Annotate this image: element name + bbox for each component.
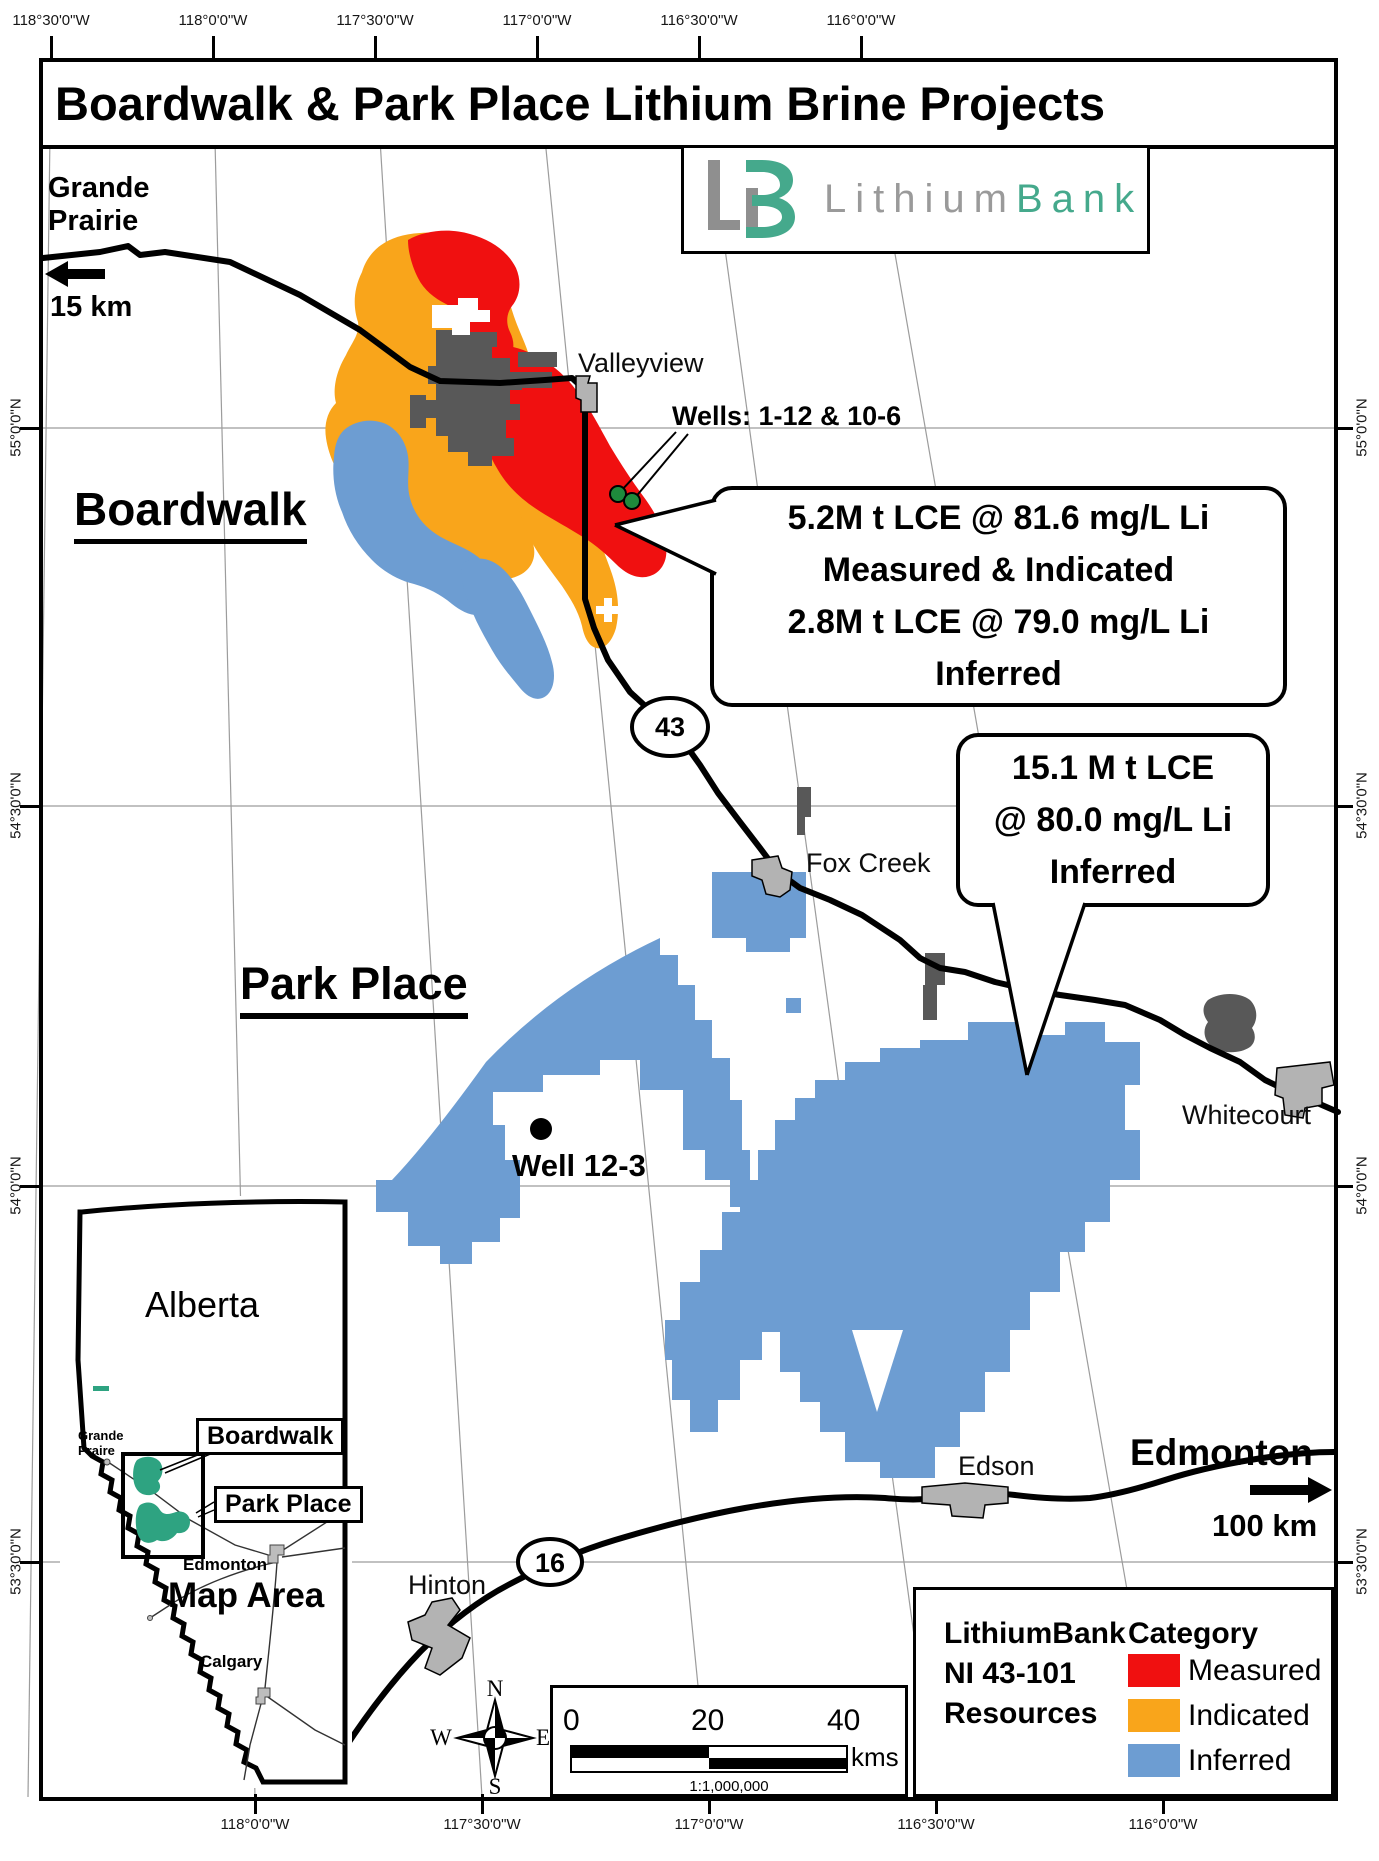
compass-n: N bbox=[481, 1676, 509, 1702]
coord-top-5: 116°0'0"W bbox=[801, 12, 921, 29]
legend: LithiumBank NI 43-101 Resources Category… bbox=[913, 1587, 1334, 1797]
coord-right-0: 55°0'0"N bbox=[1354, 368, 1371, 488]
park-place-callout-line3: Inferred bbox=[958, 846, 1268, 898]
scale-seg bbox=[572, 1758, 709, 1769]
tick bbox=[212, 36, 215, 58]
scale-ratio: 1:1,000,000 bbox=[553, 1778, 905, 1795]
highway-16-number: 16 bbox=[528, 1548, 572, 1579]
scale-20: 20 bbox=[691, 1704, 724, 1738]
legend-swatch-indicated bbox=[1128, 1699, 1180, 1732]
legend-swatch-inferred bbox=[1128, 1744, 1180, 1777]
tick bbox=[20, 427, 39, 430]
well-12-3-dot bbox=[530, 1118, 552, 1140]
tick bbox=[20, 1185, 39, 1188]
lithiumbank-logo-mark bbox=[706, 158, 798, 242]
page-title: Boardwalk & Park Place Lithium Brine Pro… bbox=[43, 76, 1105, 131]
well-10-6-dot bbox=[624, 493, 640, 509]
grande-prairie-label-line1: Grande bbox=[48, 172, 150, 205]
scale-unit: kms bbox=[851, 1742, 899, 1773]
inset-edmonton-label: Edmonton bbox=[183, 1555, 267, 1575]
map-page: Boardwalk & Park Place Lithium Brine Pro… bbox=[0, 0, 1379, 1861]
scale-seg bbox=[709, 1758, 846, 1769]
boardwalk-project-area bbox=[325, 231, 666, 699]
tick bbox=[20, 1561, 39, 1564]
tick bbox=[935, 1794, 938, 1814]
coord-top-1: 118°0'0"W bbox=[153, 12, 273, 29]
scale-bar-graphic bbox=[570, 1745, 848, 1773]
fox-creek-label: Fox Creek bbox=[806, 848, 931, 879]
inset-alberta-label: Alberta bbox=[145, 1284, 259, 1326]
legend-title-line2: NI 43-101 bbox=[944, 1654, 1076, 1694]
coord-bottom-3: 116°30'0"W bbox=[876, 1816, 996, 1833]
boardwalk-callout-line3: 2.8M t LCE @ 79.0 mg/L Li bbox=[712, 596, 1285, 648]
inset-grande-prairie-label: Grande Praire bbox=[78, 1428, 124, 1458]
coord-right-2: 54°0'0"N bbox=[1354, 1126, 1371, 1246]
tick bbox=[50, 36, 53, 58]
lithiumbank-wordmark: LithiumBank bbox=[824, 177, 1143, 222]
highway-43-number: 43 bbox=[648, 712, 692, 743]
boardwalk-callout-line1: 5.2M t LCE @ 81.6 mg/L Li bbox=[712, 492, 1285, 544]
tick bbox=[860, 36, 863, 58]
boardwalk-callout-line2: Measured & Indicated bbox=[712, 544, 1285, 596]
tick bbox=[1334, 805, 1353, 808]
tick bbox=[1334, 1185, 1353, 1188]
coord-bottom-4: 116°0'0"W bbox=[1103, 1816, 1223, 1833]
tick bbox=[1162, 1794, 1165, 1814]
grande-prairie-arrow bbox=[45, 261, 105, 287]
coord-right-1: 54°30'0"N bbox=[1354, 746, 1371, 866]
boardwalk-label: Boardwalk bbox=[74, 482, 307, 544]
coord-bottom-0: 118°0'0"W bbox=[195, 1816, 315, 1833]
inset-gp-line1: Grande bbox=[78, 1428, 124, 1443]
legend-label-indicated: Indicated bbox=[1188, 1699, 1310, 1733]
wells-label: Wells: 1-12 & 10-6 bbox=[672, 401, 901, 432]
logo-word-bank: Bank bbox=[1016, 177, 1143, 221]
scale-seg bbox=[709, 1747, 846, 1758]
tick bbox=[708, 1794, 711, 1814]
coord-top-2: 117°30'0"W bbox=[315, 12, 435, 29]
coord-bottom-2: 117°0'0"W bbox=[649, 1816, 769, 1833]
legend-title-line3: Resources bbox=[944, 1694, 1097, 1734]
compass-rose bbox=[457, 1700, 533, 1776]
title-bar: Boardwalk & Park Place Lithium Brine Pro… bbox=[39, 58, 1338, 149]
tick bbox=[536, 36, 539, 58]
legend-swatch-measured bbox=[1128, 1654, 1180, 1687]
inset-boardwalk-shape bbox=[133, 1457, 162, 1495]
whitecourt-label: Whitecourt bbox=[1182, 1100, 1311, 1131]
tick bbox=[1334, 1561, 1353, 1564]
scale-seg bbox=[572, 1747, 709, 1758]
lithiumbank-logo: LithiumBank bbox=[681, 145, 1150, 254]
tick bbox=[374, 36, 377, 58]
compass-w: W bbox=[427, 1725, 455, 1751]
park-place-resource-callout: 15.1 M t LCE @ 80.0 mg/L Li Inferred bbox=[958, 742, 1268, 898]
inset-gp-line2: Praire bbox=[78, 1443, 124, 1458]
inset-green-dash bbox=[93, 1386, 109, 1391]
tick bbox=[20, 805, 39, 808]
edmonton-arrow bbox=[1250, 1477, 1332, 1503]
inset-map-area-label: Map Area bbox=[168, 1576, 324, 1616]
scale-40: 40 bbox=[827, 1704, 860, 1738]
legend-label-inferred: Inferred bbox=[1188, 1744, 1291, 1778]
coord-bottom-1: 117°30'0"W bbox=[422, 1816, 542, 1833]
edmonton-label: Edmonton bbox=[1130, 1432, 1313, 1474]
coord-right-3: 53°30'0"N bbox=[1354, 1502, 1371, 1622]
boardwalk-callout-line4: Inferred bbox=[712, 648, 1285, 700]
tick bbox=[698, 36, 701, 58]
coord-top-0: 118°30'0"W bbox=[0, 12, 111, 29]
scale-bar: 0 20 40 kms 1:1,000,000 bbox=[550, 1685, 908, 1797]
coord-top-3: 117°0'0"W bbox=[477, 12, 597, 29]
compass-s: S bbox=[481, 1774, 509, 1800]
hinton-town bbox=[408, 1598, 470, 1675]
grande-prairie-label-line2: Prairie bbox=[48, 205, 138, 238]
coord-top-4: 116°30'0"W bbox=[639, 12, 759, 29]
tick bbox=[1334, 427, 1353, 430]
park-place-callout-line2: @ 80.0 mg/L Li bbox=[958, 794, 1268, 846]
legend-label-measured: Measured bbox=[1188, 1654, 1321, 1688]
edson-town bbox=[922, 1483, 1008, 1518]
logo-word-lithium: Lithium bbox=[824, 177, 1016, 221]
edmonton-distance: 100 km bbox=[1212, 1508, 1317, 1544]
park-place-label: Park Place bbox=[240, 958, 468, 1019]
inset-calgary-label: Calgary bbox=[200, 1652, 262, 1672]
valleyview-label: Valleyview bbox=[578, 348, 704, 379]
inset-boardwalk-box: Boardwalk bbox=[196, 1418, 344, 1455]
tick bbox=[254, 1794, 257, 1814]
grande-prairie-distance: 15 km bbox=[50, 291, 132, 324]
inset-park-place-box: Park Place bbox=[214, 1486, 363, 1523]
well-12-3-label: Well 12-3 bbox=[512, 1148, 646, 1184]
scale-0: 0 bbox=[563, 1704, 580, 1738]
edson-label: Edson bbox=[958, 1451, 1035, 1482]
park-place-callout-line1: 15.1 M t LCE bbox=[958, 742, 1268, 794]
legend-category-title: Category bbox=[1128, 1614, 1258, 1654]
hinton-label: Hinton bbox=[408, 1570, 486, 1601]
boardwalk-resource-callout: 5.2M t LCE @ 81.6 mg/L Li Measured & Ind… bbox=[712, 492, 1285, 700]
legend-title-line1: LithiumBank bbox=[944, 1614, 1126, 1654]
